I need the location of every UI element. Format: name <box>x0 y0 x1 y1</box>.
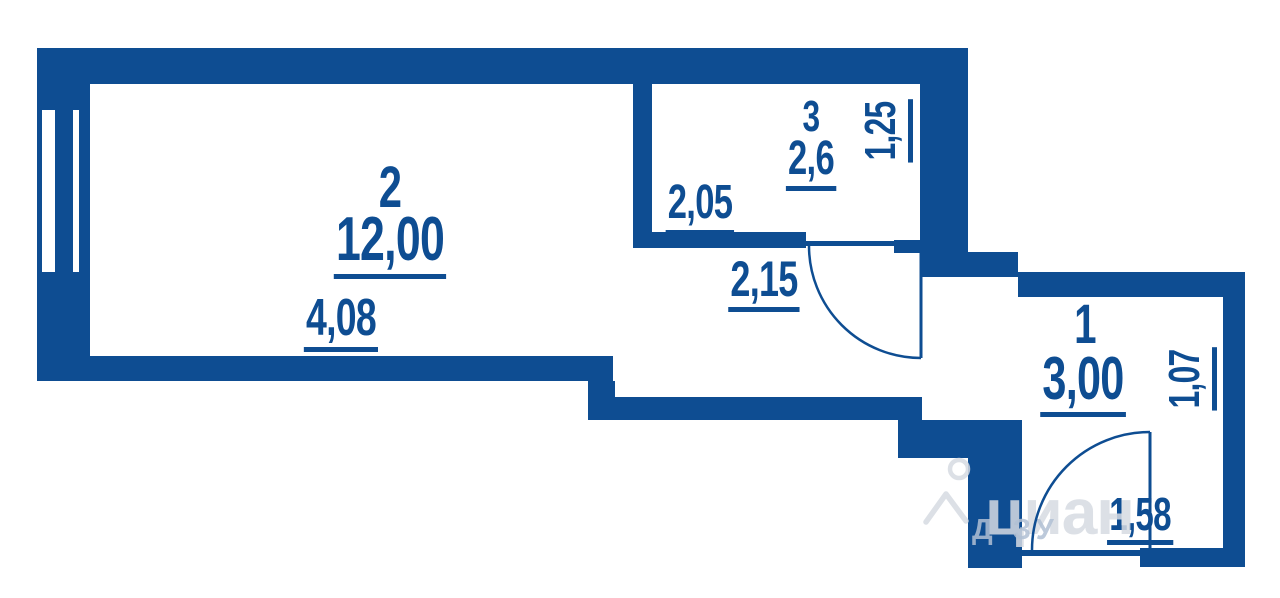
door-swings <box>0 0 1280 598</box>
door-room1-entrance <box>1032 432 1150 550</box>
door-room3-to-hall <box>809 246 921 358</box>
floor-plan-canvas: циан Д ЗУ 2 12,00 4,08 3 2,6 2,05 1,25 2… <box>0 0 1280 598</box>
